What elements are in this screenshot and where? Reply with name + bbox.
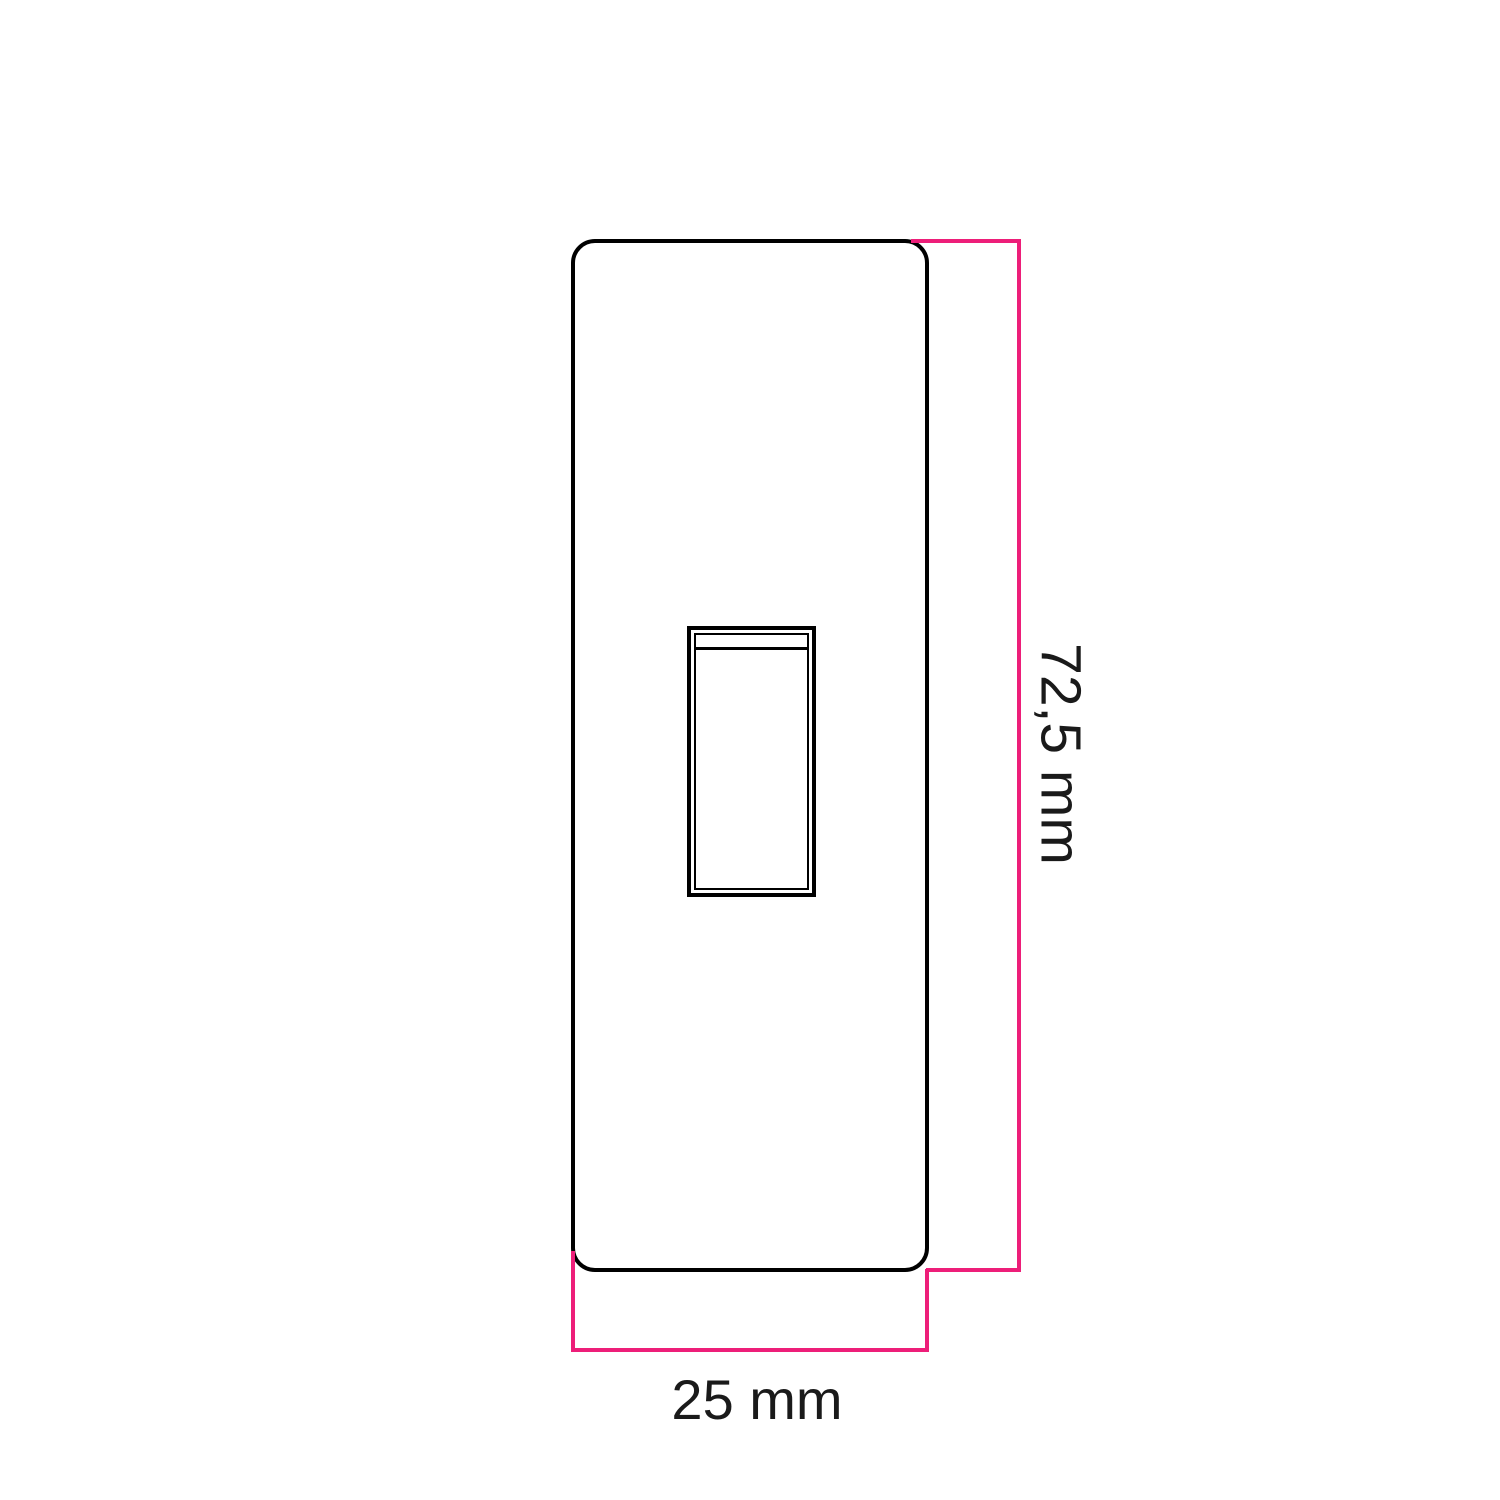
rocker-cutout-inner — [694, 633, 809, 890]
width-dimension-label: 25 mm — [671, 1372, 842, 1428]
rocker-top-divider-line — [696, 647, 807, 650]
height-extension-line-top — [911, 239, 1021, 243]
width-extension-line-left — [571, 1251, 575, 1352]
height-dimension-line — [1017, 239, 1021, 1272]
height-extension-line-bottom — [926, 1268, 1021, 1272]
width-dimension-line — [571, 1348, 929, 1352]
height-dimension-label: 72,5 mm — [1032, 643, 1089, 865]
width-extension-line-right — [925, 1269, 929, 1352]
